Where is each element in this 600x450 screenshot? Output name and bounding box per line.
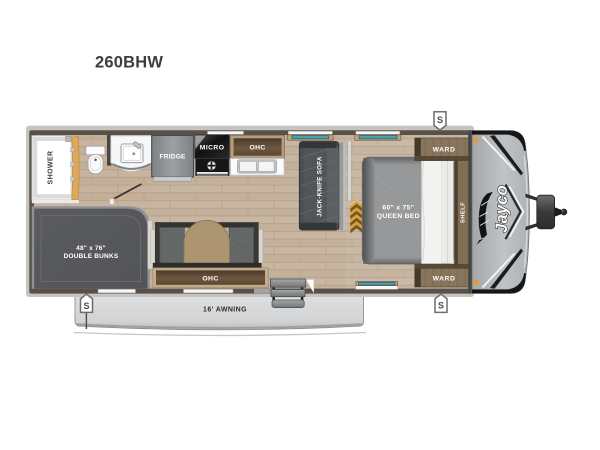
svg-text:WARD: WARD [433,276,456,283]
svg-text:Jayco: Jayco [493,185,511,233]
svg-text:16' AWNING: 16' AWNING [203,307,247,314]
svg-text:WARD: WARD [433,146,456,153]
svg-text:260BHW: 260BHW [95,54,163,72]
svg-text:JACK-KNIFE SOFA: JACK-KNIFE SOFA [317,156,324,217]
svg-text:S: S [83,301,89,311]
svg-text:FRIDGE: FRIDGE [160,153,187,160]
svg-text:OHC: OHC [249,145,265,152]
svg-text:QUEEN BED: QUEEN BED [377,213,420,220]
svg-text:OHC: OHC [202,275,218,282]
svg-text:SHOWER: SHOWER [48,151,55,185]
svg-text:MICRO: MICRO [200,144,225,151]
svg-text:DOUBLE BUNKS: DOUBLE BUNKS [64,253,119,260]
svg-text:S: S [437,115,443,125]
svg-text:SHELF: SHELF [460,202,466,224]
svg-text:48" x 76": 48" x 76" [76,245,106,252]
svg-text:60" x 75": 60" x 75" [382,205,414,212]
svg-text:S: S [438,301,444,311]
